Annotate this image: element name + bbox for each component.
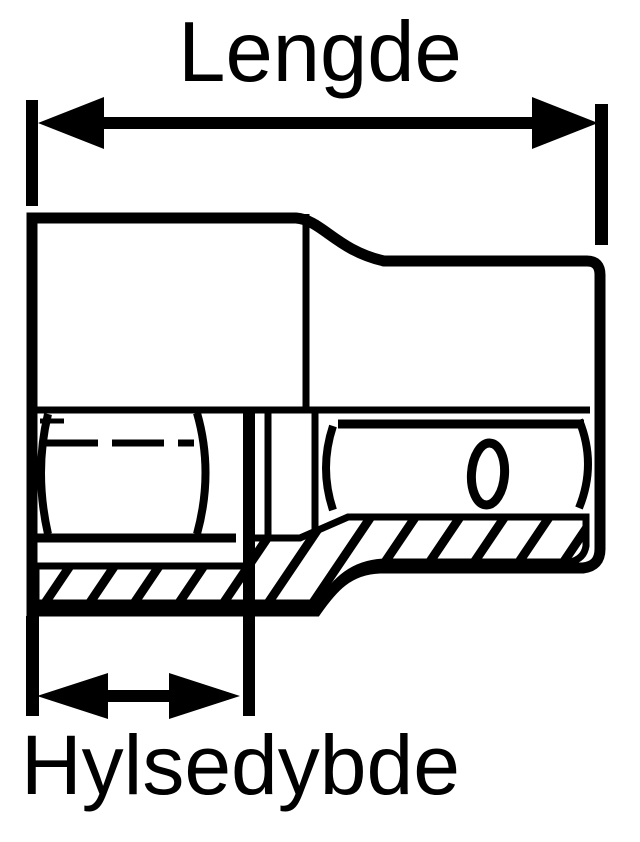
socket-cross-section-drawing	[0, 0, 640, 842]
length-arrow-shaft	[60, 117, 580, 129]
depth-extension-tick-left	[26, 616, 39, 716]
depth-arrowhead-right-icon	[169, 673, 240, 719]
depth-extension-line-right	[243, 410, 255, 716]
detent-hole-icon	[469, 442, 506, 506]
socket-depth-label: Hylsedybde	[21, 717, 460, 814]
length-extension-tick-left	[26, 100, 38, 206]
depth-arrowhead-left-icon	[37, 673, 108, 719]
length-arrowhead-left-icon	[38, 97, 104, 149]
diagram-canvas: Lengde Hylsedybde	[0, 0, 640, 842]
length-label: Lengde	[150, 4, 490, 102]
length-extension-tick-right	[595, 104, 608, 245]
length-arrowhead-right-icon	[532, 97, 598, 149]
